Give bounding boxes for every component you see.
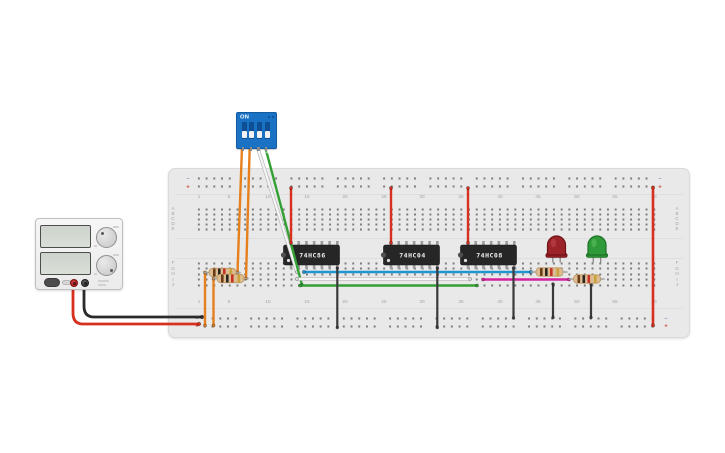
- breadboard-row-label: D: [171, 222, 174, 227]
- dip-switch-4-slider[interactable]: [265, 122, 270, 139]
- breadboard-column-number: 5: [228, 194, 231, 199]
- breadboard-column-number: 25: [381, 194, 386, 199]
- breadboard-hole-row: [195, 223, 658, 226]
- rail-minus-marker: −: [186, 176, 189, 182]
- breadboard-row-label: B: [171, 212, 174, 217]
- dip-switch-1-knob: [242, 131, 247, 138]
- breadboard-seam: [175, 308, 683, 309]
- breadboard-column-number: 60: [651, 194, 656, 199]
- circuit-canvas: 1510152025303540455055601510152025303540…: [0, 0, 725, 453]
- dip-pin: [250, 147, 253, 151]
- breadboard-column-number: 1: [197, 194, 200, 199]
- breadboard-hole-row: [195, 177, 658, 180]
- psu-knob-scale-mark: [94, 245, 97, 247]
- breadboard-row-label: G: [675, 266, 679, 271]
- psu-voltage-knob[interactable]: [96, 227, 117, 248]
- breadboard-hole-row: [195, 262, 658, 265]
- breadboard[interactable]: 1510152025303540455055601510152025303540…: [168, 168, 690, 338]
- breadboard-hole-row: [195, 267, 658, 270]
- breadboard-column-number: 10: [265, 194, 270, 199]
- dip-switch-1-slider[interactable]: [242, 122, 247, 139]
- breadboard-hole-row: [195, 218, 658, 221]
- psu-knob-scale-mark: [94, 273, 97, 275]
- knob-indicator-dot: [101, 232, 104, 235]
- breadboard-column-number: 35: [458, 299, 463, 304]
- breadboard-row-label: C: [171, 217, 174, 222]
- breadboard-column-number: 60: [651, 299, 656, 304]
- dip-switch-2-slider[interactable]: [249, 122, 254, 139]
- breadboard-row-label: I: [676, 277, 677, 282]
- breadboard-row-label: A: [171, 207, 174, 212]
- breadboard-column-number: 25: [381, 299, 386, 304]
- breadboard-row-label: E: [675, 227, 678, 232]
- dip-switch-2-knob: [249, 131, 254, 138]
- breadboard-row-label: I: [172, 277, 173, 282]
- rail-plus-marker: +: [195, 323, 198, 329]
- breadboard-row-label: A: [675, 207, 678, 212]
- breadboard-row-label: J: [171, 283, 173, 288]
- breadboard-row-label: B: [675, 212, 678, 217]
- rail-minus-marker: −: [195, 316, 198, 322]
- breadboard-column-number: 20: [343, 194, 348, 199]
- breadboard-row-label: F: [171, 261, 174, 266]
- dip-dot: [272, 116, 274, 118]
- rail-minus-marker: −: [664, 316, 667, 322]
- breadboard-row-label: J: [676, 283, 678, 288]
- rail-plus-marker: +: [658, 184, 661, 190]
- breadboard-column-number: 40: [497, 194, 502, 199]
- breadboard-seam: [175, 194, 683, 195]
- breadboard-row-label: E: [171, 227, 174, 232]
- breadboard-hole-row: [195, 208, 658, 211]
- psu-current-display: [40, 252, 91, 275]
- breadboard-column-number: 15: [304, 299, 309, 304]
- breadboard-column-number: 30: [420, 194, 425, 199]
- breadboard-column-number: 50: [574, 299, 579, 304]
- rail-plus-marker: +: [186, 184, 189, 190]
- breadboard-row-label: F: [676, 261, 679, 266]
- dip-switch-3-knob: [257, 131, 262, 138]
- psu-power-button[interactable]: [44, 278, 60, 287]
- psu-current-knob[interactable]: [96, 255, 117, 276]
- breadboard-column-number: 55: [613, 299, 618, 304]
- breadboard-row-label: C: [675, 217, 678, 222]
- breadboard-hole-row: [195, 185, 658, 188]
- breadboard-channel-bottom: [175, 258, 683, 259]
- breadboard-column-number: 40: [497, 299, 502, 304]
- dip-switch-3-slider[interactable]: [257, 122, 262, 139]
- psu-negative-terminal[interactable]: [81, 279, 89, 287]
- breadboard-hole-row: [195, 273, 658, 276]
- rail-plus-marker: +: [664, 323, 667, 329]
- breadboard-column-number: 35: [458, 194, 463, 199]
- breadboard-column-number: 45: [536, 299, 541, 304]
- knob-indicator-dot: [110, 269, 113, 272]
- dip-pin: [242, 147, 245, 151]
- psu-voltage-display: [40, 225, 91, 248]
- psu-positive-terminal[interactable]: [70, 279, 78, 287]
- breadboard-column-number: 1: [197, 299, 200, 304]
- psu-knob-scale-mark: [113, 254, 119, 256]
- breadboard-hole-row: [201, 325, 664, 328]
- dip-dot: [268, 116, 270, 118]
- breadboard-row-label: H: [171, 272, 174, 277]
- breadboard-hole-row: [201, 317, 664, 320]
- breadboard-row-label: G: [171, 266, 175, 271]
- breadboard-column-number: 55: [613, 194, 618, 199]
- breadboard-column-number: 45: [536, 194, 541, 199]
- dip-pin: [265, 147, 268, 151]
- breadboard-row-label: H: [675, 272, 678, 277]
- breadboard-column-number: 15: [304, 194, 309, 199]
- psu-branding-mark: [98, 280, 109, 282]
- psu-knob-scale-mark: [113, 226, 119, 228]
- breadboard-row-label: D: [675, 222, 678, 227]
- breadboard-column-number: 5: [228, 299, 231, 304]
- breadboard-hole-row: [195, 213, 658, 216]
- dip-switch[interactable]: ON 1 2 3 4: [236, 112, 277, 149]
- breadboard-column-number: 30: [420, 299, 425, 304]
- power-supply[interactable]: [35, 218, 123, 290]
- breadboard-channel-top: [175, 238, 683, 239]
- breadboard-column-number: 50: [574, 194, 579, 199]
- psu-branding-mark: [98, 284, 106, 286]
- dip-pin: [257, 147, 260, 151]
- dip-switch-4-knob: [265, 131, 270, 138]
- breadboard-hole-row: [195, 278, 658, 281]
- rail-minus-marker: −: [658, 176, 661, 182]
- breadboard-hole-row: [195, 228, 658, 231]
- dip-on-label: ON: [240, 114, 249, 120]
- breadboard-column-number: 10: [265, 299, 270, 304]
- breadboard-hole-row: [195, 284, 658, 287]
- breadboard-column-number: 20: [343, 299, 348, 304]
